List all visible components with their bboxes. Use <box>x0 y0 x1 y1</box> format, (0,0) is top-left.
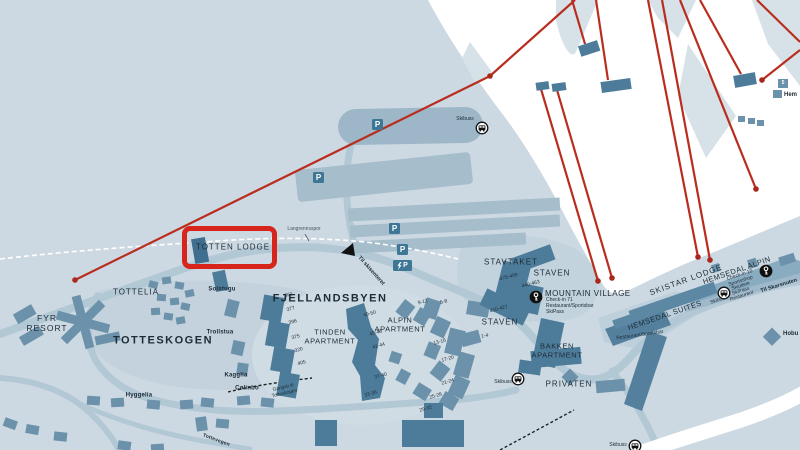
check-in-key-icon <box>529 290 543 304</box>
legend-square-5: 5 <box>778 79 788 88</box>
ski-bus-icon <box>475 121 489 135</box>
label-langrennsspor: Langrennsspor <box>287 227 320 233</box>
label-stavtaket: STAVTAKET <box>484 257 538 266</box>
lightning-icon <box>397 262 402 270</box>
label-solstugu: Solstugu <box>208 287 235 294</box>
label-bakken-apartment: BAKKEN APARTMENT <box>532 342 583 359</box>
unit-1-4: 1-4 <box>481 334 489 341</box>
label-hobu: Hobu <box>783 331 798 338</box>
label-totten-lodge: TOTTEN LODGE <box>196 242 270 251</box>
ski-bus-icon <box>511 372 525 386</box>
label-privaten: PRIVATEN <box>546 379 593 388</box>
label-staven-upper: STAVEN <box>534 268 571 277</box>
ski-bus-icon <box>717 286 731 300</box>
ski-bus-icon <box>628 439 642 450</box>
label-tottelia: TOTTELIA <box>113 287 159 296</box>
label-staven-lower: STAVEN <box>482 317 519 326</box>
parking-icon: P <box>313 172 324 183</box>
label-skibuss-top: Skibuss <box>456 117 474 123</box>
label-hyggelia: Hyggelia <box>126 393 153 400</box>
label-trollstua: Trollstua <box>207 330 234 337</box>
label-tinden-apartment: TINDEN APARTMENT <box>305 328 356 345</box>
map-graphics <box>0 0 800 450</box>
label-skibuss-bottom: Skibuss <box>609 443 627 449</box>
label-hem: Hem <box>784 92 797 99</box>
label-colinbo: Cølinbo <box>235 386 259 393</box>
parking-icon: P <box>397 244 408 255</box>
label-kagglia: Kagglia <box>224 373 247 380</box>
label-skibuss-privaten: Skibuss <box>494 380 512 386</box>
ev-charging-parking-icon: P <box>393 260 412 271</box>
parking-icon: P <box>389 223 400 234</box>
label-fyr-resort: FYR RESORT <box>26 314 67 334</box>
label-totteskogen: TOTTESKOGEN <box>113 335 213 348</box>
check-in-key-icon <box>759 264 773 278</box>
label-mv-skipass: SkiPass <box>546 310 564 316</box>
resort-map: TOTTEN LODGE Solstugu TOTTELIA FYR RESOR… <box>0 0 800 450</box>
parking-icon: P <box>372 119 383 130</box>
